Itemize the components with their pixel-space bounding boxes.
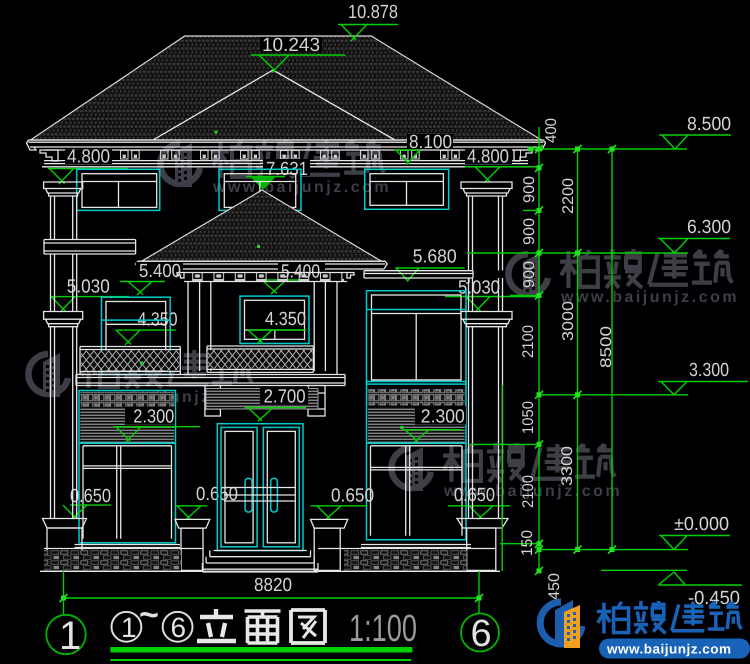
svg-text:www.baijunjz.com: www.baijunjz.com <box>606 642 732 657</box>
svg-text:5.680: 5.680 <box>413 247 457 268</box>
svg-text:0.650: 0.650 <box>331 486 374 507</box>
svg-text:8.500: 8.500 <box>687 114 731 135</box>
svg-text:1:100: 1:100 <box>349 608 417 650</box>
svg-text:5.400: 5.400 <box>139 261 181 282</box>
svg-text:3000: 3000 <box>560 301 577 341</box>
svg-text:~: ~ <box>139 596 159 634</box>
svg-text:6.300: 6.300 <box>687 217 731 238</box>
svg-text:1: 1 <box>121 612 137 643</box>
svg-text:900: 900 <box>521 176 538 203</box>
svg-text:10.243: 10.243 <box>262 35 320 56</box>
svg-text:2100: 2100 <box>520 475 537 508</box>
svg-text:10.878: 10.878 <box>348 2 398 23</box>
svg-text:400: 400 <box>543 118 560 143</box>
svg-text:1050: 1050 <box>520 401 537 434</box>
svg-text:3.300: 3.300 <box>689 360 729 381</box>
svg-text:900: 900 <box>521 218 538 245</box>
svg-text:4.350: 4.350 <box>265 309 306 330</box>
svg-text:450: 450 <box>546 573 563 600</box>
svg-text:4.800: 4.800 <box>67 147 110 168</box>
svg-text:2200: 2200 <box>560 178 577 214</box>
svg-text:6: 6 <box>171 612 187 643</box>
svg-text:±0.000: ±0.000 <box>674 514 729 535</box>
svg-text:3300: 3300 <box>559 446 576 486</box>
svg-text:2.300: 2.300 <box>133 407 174 428</box>
svg-text:6: 6 <box>471 613 492 655</box>
svg-text:5.030: 5.030 <box>458 278 500 299</box>
svg-text:8820: 8820 <box>254 575 292 596</box>
svg-text:150: 150 <box>519 530 536 556</box>
svg-text:1: 1 <box>59 614 81 658</box>
svg-text:2.300: 2.300 <box>421 407 465 428</box>
svg-text:900: 900 <box>521 261 538 288</box>
svg-text:4.800: 4.800 <box>467 147 509 168</box>
svg-text:2100: 2100 <box>520 325 537 358</box>
svg-text:0.650: 0.650 <box>454 485 495 506</box>
svg-text:2.700: 2.700 <box>264 387 306 408</box>
svg-text:8500: 8500 <box>598 326 615 368</box>
